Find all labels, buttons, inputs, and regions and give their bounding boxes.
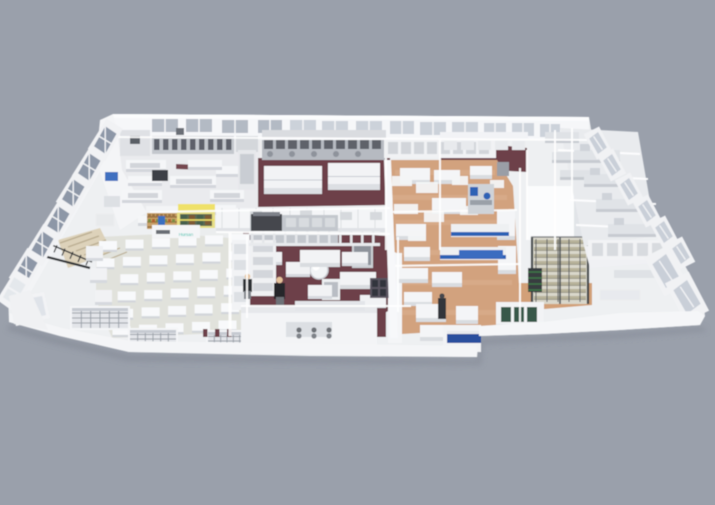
svg-text:Hursan: Hursan xyxy=(179,232,194,237)
